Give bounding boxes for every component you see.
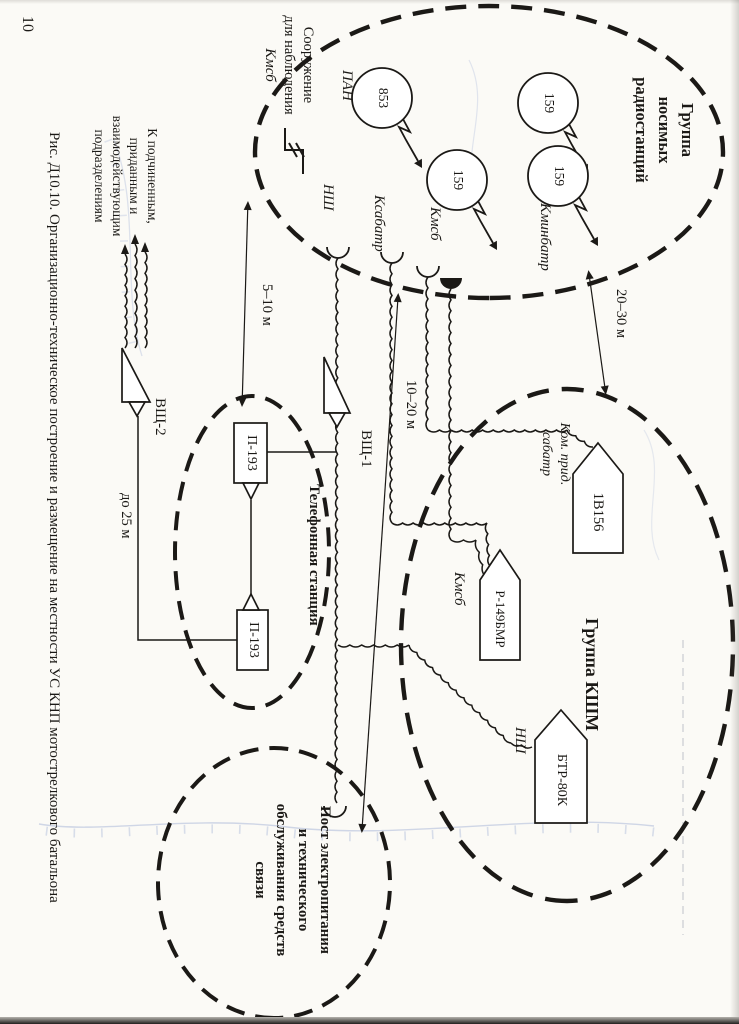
cable-arrowhead	[121, 244, 129, 254]
radio-159-number: 159	[449, 160, 466, 200]
cable-to-subordinates	[125, 254, 127, 348]
phone-station-title: Телефонная станция	[304, 462, 323, 648]
subordinates-note: К подчиненным, приданным и взаимодейству…	[91, 108, 161, 244]
arrowhead	[586, 270, 594, 280]
vsh2-connector	[129, 402, 145, 416]
radio-group-title: Группа носимых радиостанций	[630, 30, 699, 230]
connector-triangle	[243, 594, 259, 610]
page-number: 10	[17, 16, 37, 32]
label-kmsb-kshm: Кмсб	[449, 572, 468, 606]
label-vsh2: ВЩ-2	[150, 398, 169, 436]
radio-853-number: 853	[374, 78, 391, 118]
label-kminbatr: Кминбатр	[535, 203, 554, 271]
arrowhead	[238, 398, 246, 407]
cable-to-r149	[451, 540, 476, 542]
topo-contour-ticks	[39, 828, 654, 837]
switchboard-p193-label: П-193	[245, 610, 263, 670]
vehicle-1v156-label: 1В156	[589, 470, 607, 554]
cable-to-btr	[338, 645, 409, 647]
vsh1-connector	[329, 413, 345, 427]
label-pan: ПАН	[337, 70, 356, 101]
kshm-group-title: Группа КШМ	[581, 618, 604, 731]
cable-nsh-line	[335, 258, 338, 803]
line-vsh2-to-p193	[138, 416, 237, 640]
label-ksabatr-line: Ксабатр	[369, 195, 388, 252]
handset-ksabatr-icon	[381, 252, 403, 263]
handset-kmsb-icon	[417, 266, 439, 277]
scan-edge-bottom	[0, 1017, 739, 1024]
cable-to-subordinates	[145, 252, 147, 348]
arrow-20-30-line	[590, 279, 605, 386]
scan-edge-top	[0, 0, 739, 4]
label-nsh-btr: НШ	[510, 727, 529, 753]
arrow-5-10-line	[242, 210, 247, 398]
figure-caption: Рис. Д10.10. Организационно-техническое …	[44, 132, 63, 903]
arrowhead	[244, 201, 252, 210]
radio-159-number: 159	[550, 156, 567, 196]
vehicle-r149bmr-label: Р-149БМР	[492, 577, 508, 661]
handset-filled-icon	[440, 278, 462, 289]
cable-kmsb-line	[428, 430, 451, 432]
label-kom-prid-sabatr: Ком. прид. сабатр	[538, 408, 573, 500]
arrow-10-20-line	[362, 302, 397, 824]
power-post-title: Пост электропитания и технического обслу…	[248, 760, 335, 1000]
switchboard-p193-label: П-193	[243, 423, 261, 483]
distance-25: до 25 м	[117, 493, 135, 539]
distance-5-10: 5–10 м	[258, 284, 276, 326]
connector-triangle	[243, 483, 259, 499]
handset-nsh-icon	[327, 247, 349, 258]
scan-edge-right	[730, 0, 739, 1024]
observation-label: Сооружение для наблюдения Кмсб	[260, 6, 317, 124]
cable-to-r149	[475, 540, 486, 577]
distance-20-30: 20–30 м	[612, 289, 630, 338]
cable-trunk-line	[449, 289, 451, 540]
label-vsh1: ВЩ-1	[356, 430, 375, 468]
radio-159-number: 159	[540, 83, 557, 123]
cable-ksabatr-line	[392, 523, 487, 525]
arrowhead	[358, 824, 366, 833]
label-kmsb-radio: Кмсб	[425, 207, 444, 241]
observation-structure-symbol	[285, 128, 304, 174]
diagram-canvas: 10 Рис. Д10.10. Организационно-техническ…	[0, 0, 739, 1024]
label-nsh-line: НШ	[318, 184, 337, 210]
scanned-book-page: 10 Рис. Д10.10. Организационно-техническ…	[0, 0, 739, 1024]
arrowhead	[394, 293, 402, 302]
vsh2-pennant-symbol	[122, 348, 150, 402]
vehicle-btr80k-label: БТР-80К	[553, 737, 571, 823]
distance-10-20: 10–20 м	[402, 380, 420, 429]
topo-scribble	[644, 430, 659, 560]
cable-kmsb-line	[426, 277, 428, 430]
